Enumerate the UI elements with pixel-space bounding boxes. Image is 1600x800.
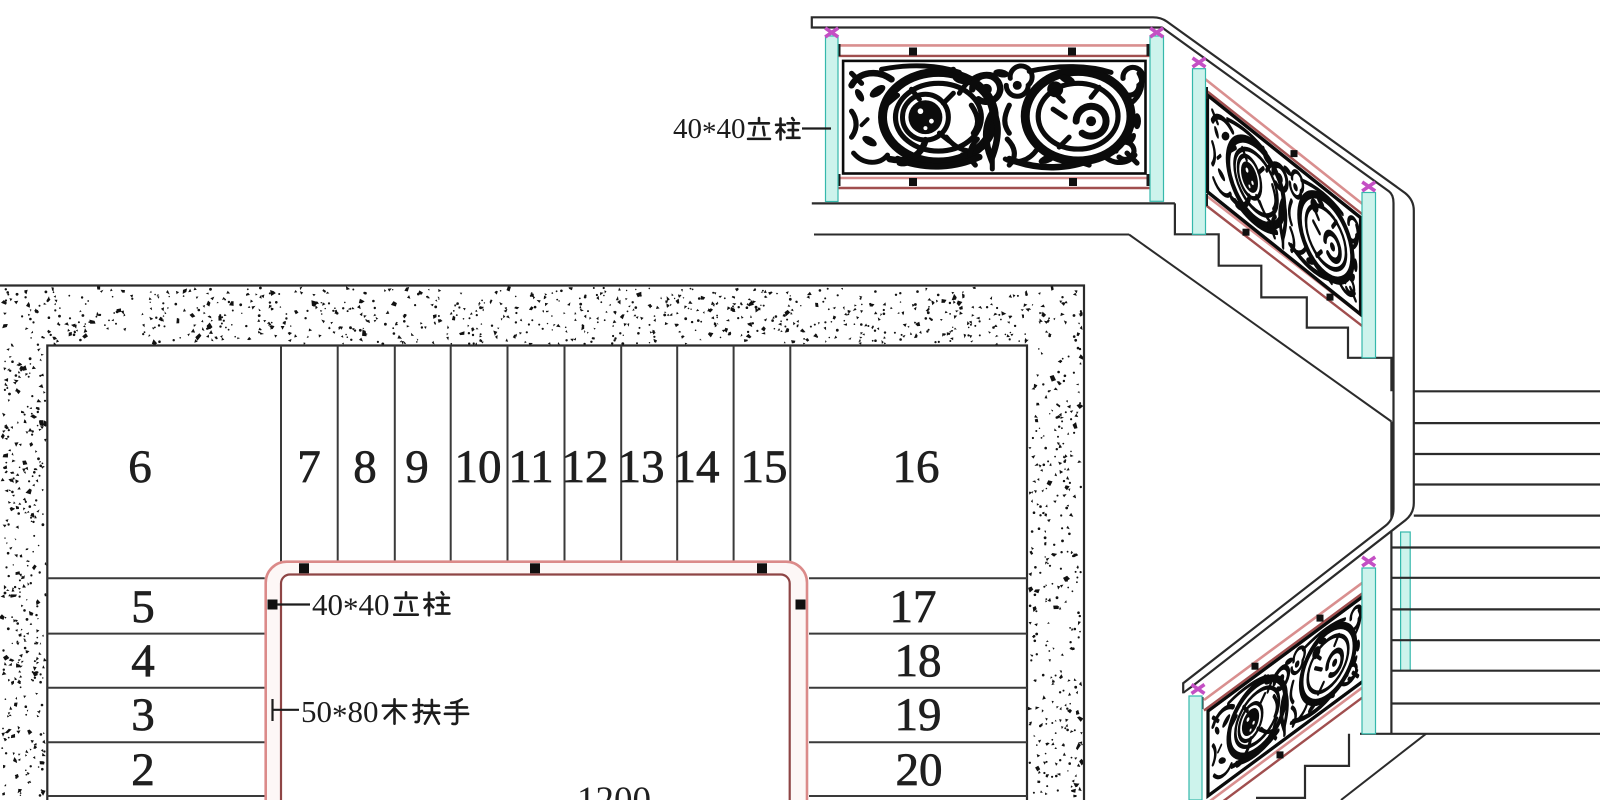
svg-text:3: 3 (131, 689, 155, 741)
svg-text:50*80: 50*80 (301, 694, 379, 733)
svg-text:10: 10 (455, 441, 502, 493)
svg-text:40*40: 40*40 (673, 113, 746, 149)
svg-text:13: 13 (618, 441, 665, 493)
svg-text:11: 11 (508, 441, 553, 493)
svg-text:2: 2 (131, 744, 155, 796)
svg-text:9: 9 (405, 441, 429, 493)
svg-text:19: 19 (895, 689, 942, 741)
svg-text:15: 15 (741, 441, 788, 493)
svg-text:1200: 1200 (577, 780, 651, 800)
svg-text:16: 16 (893, 441, 940, 493)
svg-text:5: 5 (131, 581, 155, 633)
svg-text:7: 7 (297, 441, 321, 493)
svg-text:17: 17 (890, 581, 937, 633)
svg-text:6: 6 (128, 441, 152, 493)
svg-text:4: 4 (131, 635, 155, 687)
svg-text:12: 12 (562, 441, 609, 493)
svg-text:14: 14 (673, 441, 720, 493)
svg-text:20: 20 (896, 744, 943, 796)
svg-text:8: 8 (353, 441, 377, 493)
svg-text:18: 18 (895, 635, 942, 687)
svg-text:40*40: 40*40 (312, 587, 390, 626)
